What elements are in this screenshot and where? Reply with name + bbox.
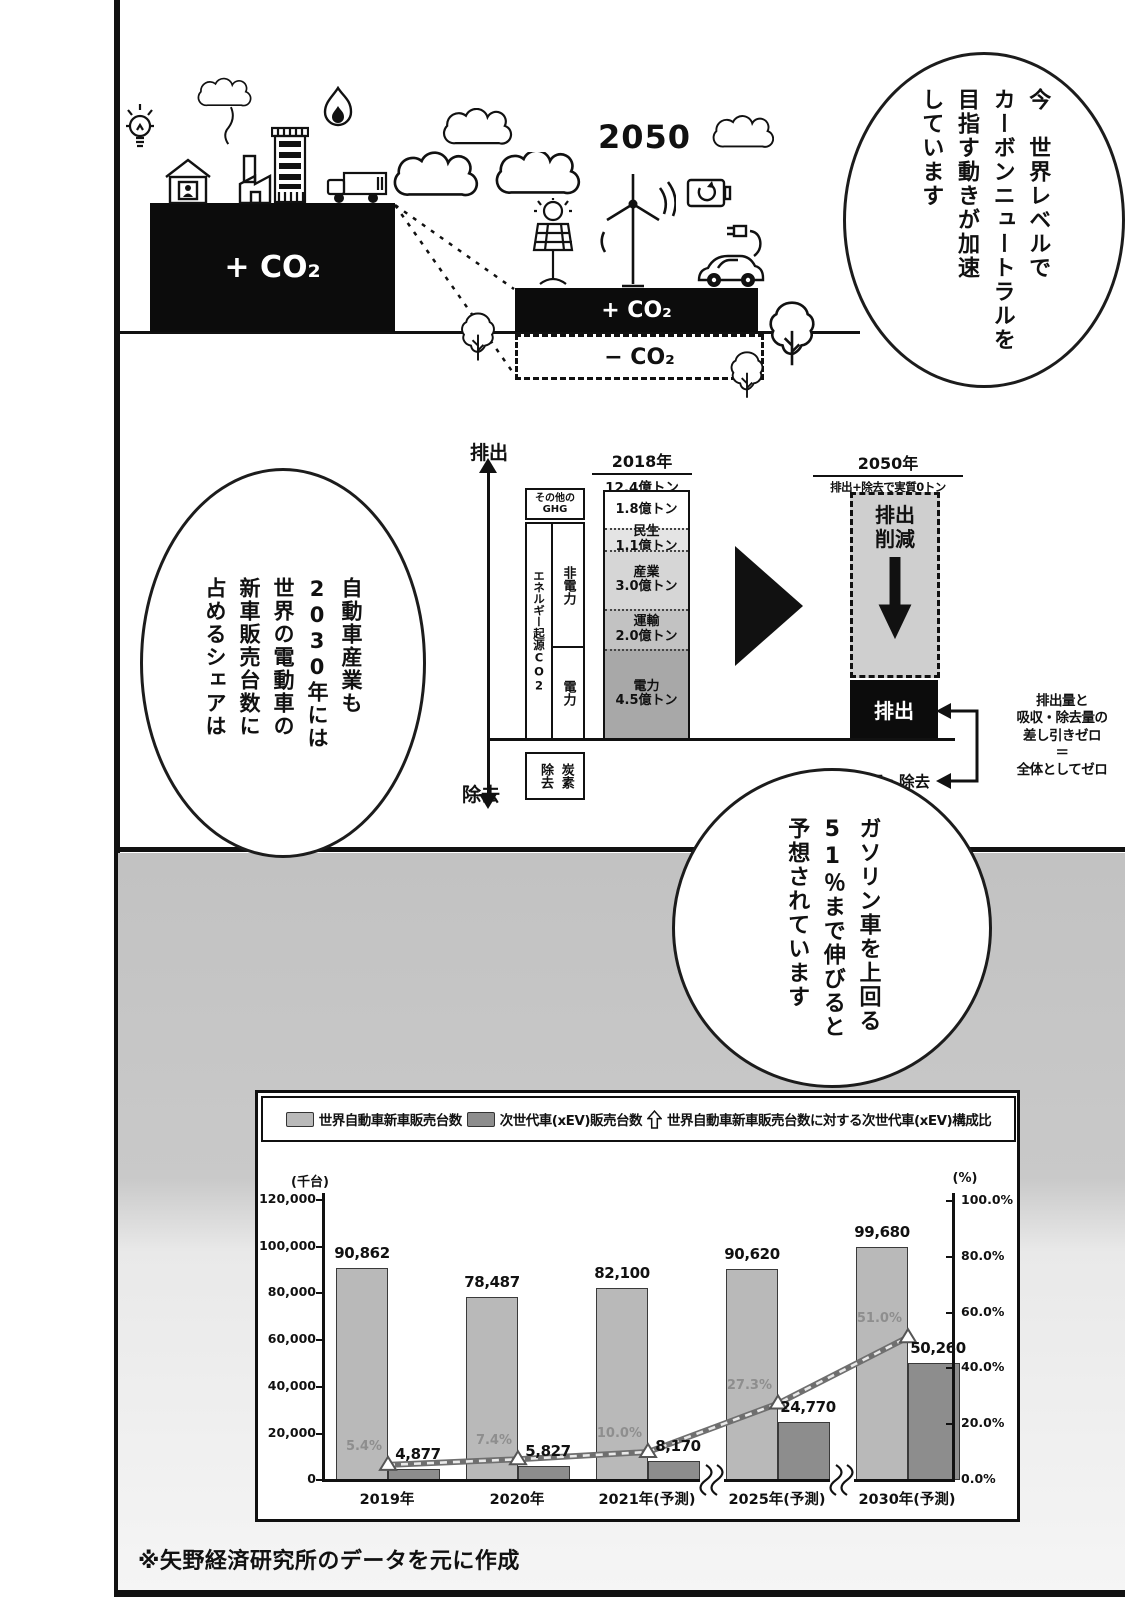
right-axis-tick: 100.0%	[961, 1192, 1021, 1207]
right-axis-tick: 80.0%	[961, 1248, 1021, 1263]
transition-arrow	[735, 546, 803, 666]
chart-el	[316, 1479, 322, 1481]
composition-ratio-value: 51.0%	[840, 1311, 902, 1326]
bubble-auto-line: 新車販売台数に	[232, 577, 266, 750]
bar-total-sales	[856, 1247, 908, 1480]
bubble-auto-line: 世界の電動車の	[266, 577, 300, 750]
xev-sales-value: 5,827	[500, 1442, 596, 1460]
bubble-world-line: 今 世界レベルで	[1020, 88, 1056, 352]
year-2050-heading: 2050	[598, 118, 691, 156]
emission-segment: 1.8億トン	[605, 492, 688, 528]
bar-xev-sales	[648, 1461, 700, 1480]
house-icon	[162, 155, 214, 205]
right-axis-tick: 60.0%	[961, 1304, 1021, 1319]
total-sales-value: 90,862	[312, 1244, 412, 1262]
co2-removal-box: − CO₂	[515, 334, 764, 380]
right-axis-tick: 20.0%	[961, 1415, 1021, 1430]
energy-co2-label: エネルギー起源CO2	[527, 524, 553, 738]
left-axis-line	[322, 1193, 325, 1481]
chart-el	[946, 1312, 952, 1314]
chart-el	[946, 1256, 952, 1258]
chart-el	[946, 1200, 952, 1202]
chart-el	[316, 1199, 322, 1201]
bubble-gasoline-line: ガソリン車を上回る	[850, 817, 886, 1039]
ev-car-icon	[696, 222, 766, 290]
year-2050-label: 2050年	[813, 450, 963, 477]
speech-bubble-gasoline: ガソリン車を上回る 51％まで伸びると 予想されています	[672, 768, 992, 1088]
x-axis-label: 2030年(予測)	[842, 1488, 972, 1509]
tree-icon-right-big	[768, 298, 816, 370]
emission-box-2050: 排出	[850, 680, 938, 738]
left-axis-tick: 100,000	[258, 1238, 316, 1253]
panel-bottom-border	[114, 1590, 1125, 1597]
bar-xev-sales	[518, 1466, 570, 1480]
battery-recharge-icon	[686, 176, 732, 210]
emission-segment: 運輸2.0億トン	[605, 609, 688, 649]
factory-smoke-icon	[190, 76, 256, 162]
left-axis-tick: 40,000	[258, 1378, 316, 1393]
right-axis-tick: 0.0%	[961, 1471, 1021, 1486]
left-axis-tick: 20,000	[258, 1425, 316, 1440]
left-axis-tick: 60,000	[258, 1331, 316, 1346]
composition-ratio-value: 27.3%	[710, 1378, 772, 1393]
factory-icon	[238, 152, 274, 205]
chart-el	[316, 1339, 322, 1341]
composition-ratio-value: 5.4%	[320, 1439, 382, 1454]
xev-sales-chart: 世界自動車新車販売台数 次世代車(xEV)販売台数 世界自動車新車販売台数に対す…	[255, 1090, 1020, 1522]
emission-reduction-box: 排出 削減	[850, 492, 940, 678]
flame-icon	[323, 86, 353, 130]
tree-icon-right-small	[728, 350, 766, 400]
col-2018-header: 2018年 12.4億トン	[592, 448, 692, 496]
co2-block-now: + CO₂	[150, 203, 395, 332]
plot-area: 120,000100,00080,00060,00040,00020,00001…	[258, 1093, 1023, 1525]
left-axis-unit: (千台)	[270, 1171, 350, 1190]
x-axis-label: 2021年(予測)	[582, 1488, 712, 1509]
x-axis-line	[322, 1479, 955, 1482]
energy-co2-box: エネルギー起源CO2 非電力 電力	[525, 522, 585, 740]
bar-total-sales	[726, 1269, 778, 1480]
x-axis-label: 2019年	[322, 1488, 452, 1509]
bubble-world-line: カーボンニュートラルを	[984, 88, 1020, 352]
total-sales-value: 90,620	[702, 1245, 802, 1263]
right-axis-tick: 40.0%	[961, 1359, 1021, 1374]
year-2018-label: 2018年	[592, 448, 692, 475]
co2-block-2050: + CO₂	[515, 288, 758, 332]
x-axis-label: 2025年(予測)	[712, 1488, 842, 1509]
left-axis-tick: 0	[258, 1471, 316, 1486]
emissions-stacked-bar-2018: 1.8億トン民生1.1億トン産業3.0億トン運輸2.0億トン電力4.5億トン	[603, 490, 690, 740]
cloud-icon-left	[488, 152, 584, 196]
bubble-auto-line: 自動車産業も	[334, 577, 368, 750]
vertical-axis	[487, 470, 490, 796]
emission-segment: 民生1.1億トン	[605, 528, 688, 550]
chart-el	[946, 1423, 952, 1425]
source-note: ※矢野経済研究所のデータを元に作成	[138, 1543, 520, 1575]
emission-segment: 電力4.5億トン	[605, 649, 688, 738]
bubble-auto-line: 占めるシェアは	[198, 577, 232, 750]
solar-lamp-icon	[530, 198, 576, 290]
carbon-removal-box: 炭素 除去	[525, 752, 585, 800]
comic-page: + CO₂ + CO₂ − CO₂ 2050	[0, 0, 1125, 1600]
chart-el	[946, 1479, 952, 1481]
bar-xev-sales	[778, 1422, 830, 1480]
power-label: 電力	[553, 648, 583, 738]
cloud-icon-right	[710, 114, 774, 152]
wind-turbine-icon	[590, 170, 676, 290]
bubble-world-line: しています	[913, 88, 949, 352]
left-axis-tick: 80,000	[258, 1284, 316, 1299]
x-axis-label: 2020年	[452, 1488, 582, 1509]
right-axis-line	[952, 1193, 955, 1481]
composition-ratio-value: 7.4%	[450, 1433, 512, 1448]
chart-el	[946, 1367, 952, 1369]
netzero-note: 排出量と 吸収・除去量の 差し引きゼロ ＝ 全体としてゼロ	[1002, 693, 1122, 779]
bubble-gasoline-line: 予想されています	[779, 817, 815, 1039]
speech-bubble-world: 今 世界レベルで カーボンニュートラルを 目指す動きが加速 しています	[843, 52, 1125, 388]
other-ghg-box: その他の GHG	[525, 488, 585, 520]
emission-segment: 産業3.0億トン	[605, 550, 688, 610]
co2-2050-minus-label: − CO₂	[604, 345, 675, 370]
total-sales-value: 99,680	[832, 1223, 932, 1241]
office-building-icon	[271, 126, 309, 204]
col-2050-header: 2050年 排出+除去で実質0トン	[813, 450, 963, 495]
co2-2050-plus-label: + CO₂	[601, 298, 672, 323]
total-sales-value: 82,100	[572, 1264, 672, 1282]
truck-icon	[326, 168, 388, 206]
bubble-world-line: 目指す動きが加速	[948, 88, 984, 352]
bubble-gasoline-line: 51％まで伸びると	[814, 817, 850, 1039]
reduction-down-arrow	[875, 557, 915, 641]
lightbulb-icon	[124, 100, 156, 160]
right-axis-unit: (%)	[930, 1171, 1000, 1186]
composition-ratio-value: 10.0%	[580, 1426, 642, 1441]
xev-sales-value: 24,770	[760, 1398, 856, 1416]
axis-removal-label: 除去	[450, 780, 512, 807]
chart-el	[316, 1292, 322, 1294]
netzero-elbow-arrow	[930, 690, 988, 795]
co2-now-label: + CO₂	[224, 250, 320, 285]
bubble-auto-line: 2030年には	[300, 577, 334, 750]
speech-bubble-auto: 自動車産業も 2030年には 世界の電動車の 新車販売台数に 占めるシェアは	[140, 468, 426, 858]
tree-icon-left	[460, 308, 496, 366]
left-axis-tick: 120,000	[258, 1191, 316, 1206]
total-sales-value: 78,487	[442, 1273, 542, 1291]
chart-el	[316, 1433, 322, 1435]
non-power-label: 非電力	[553, 524, 583, 648]
xev-sales-value: 50,260	[890, 1339, 986, 1357]
chart-el	[316, 1386, 322, 1388]
xev-sales-value: 8,170	[630, 1437, 726, 1455]
